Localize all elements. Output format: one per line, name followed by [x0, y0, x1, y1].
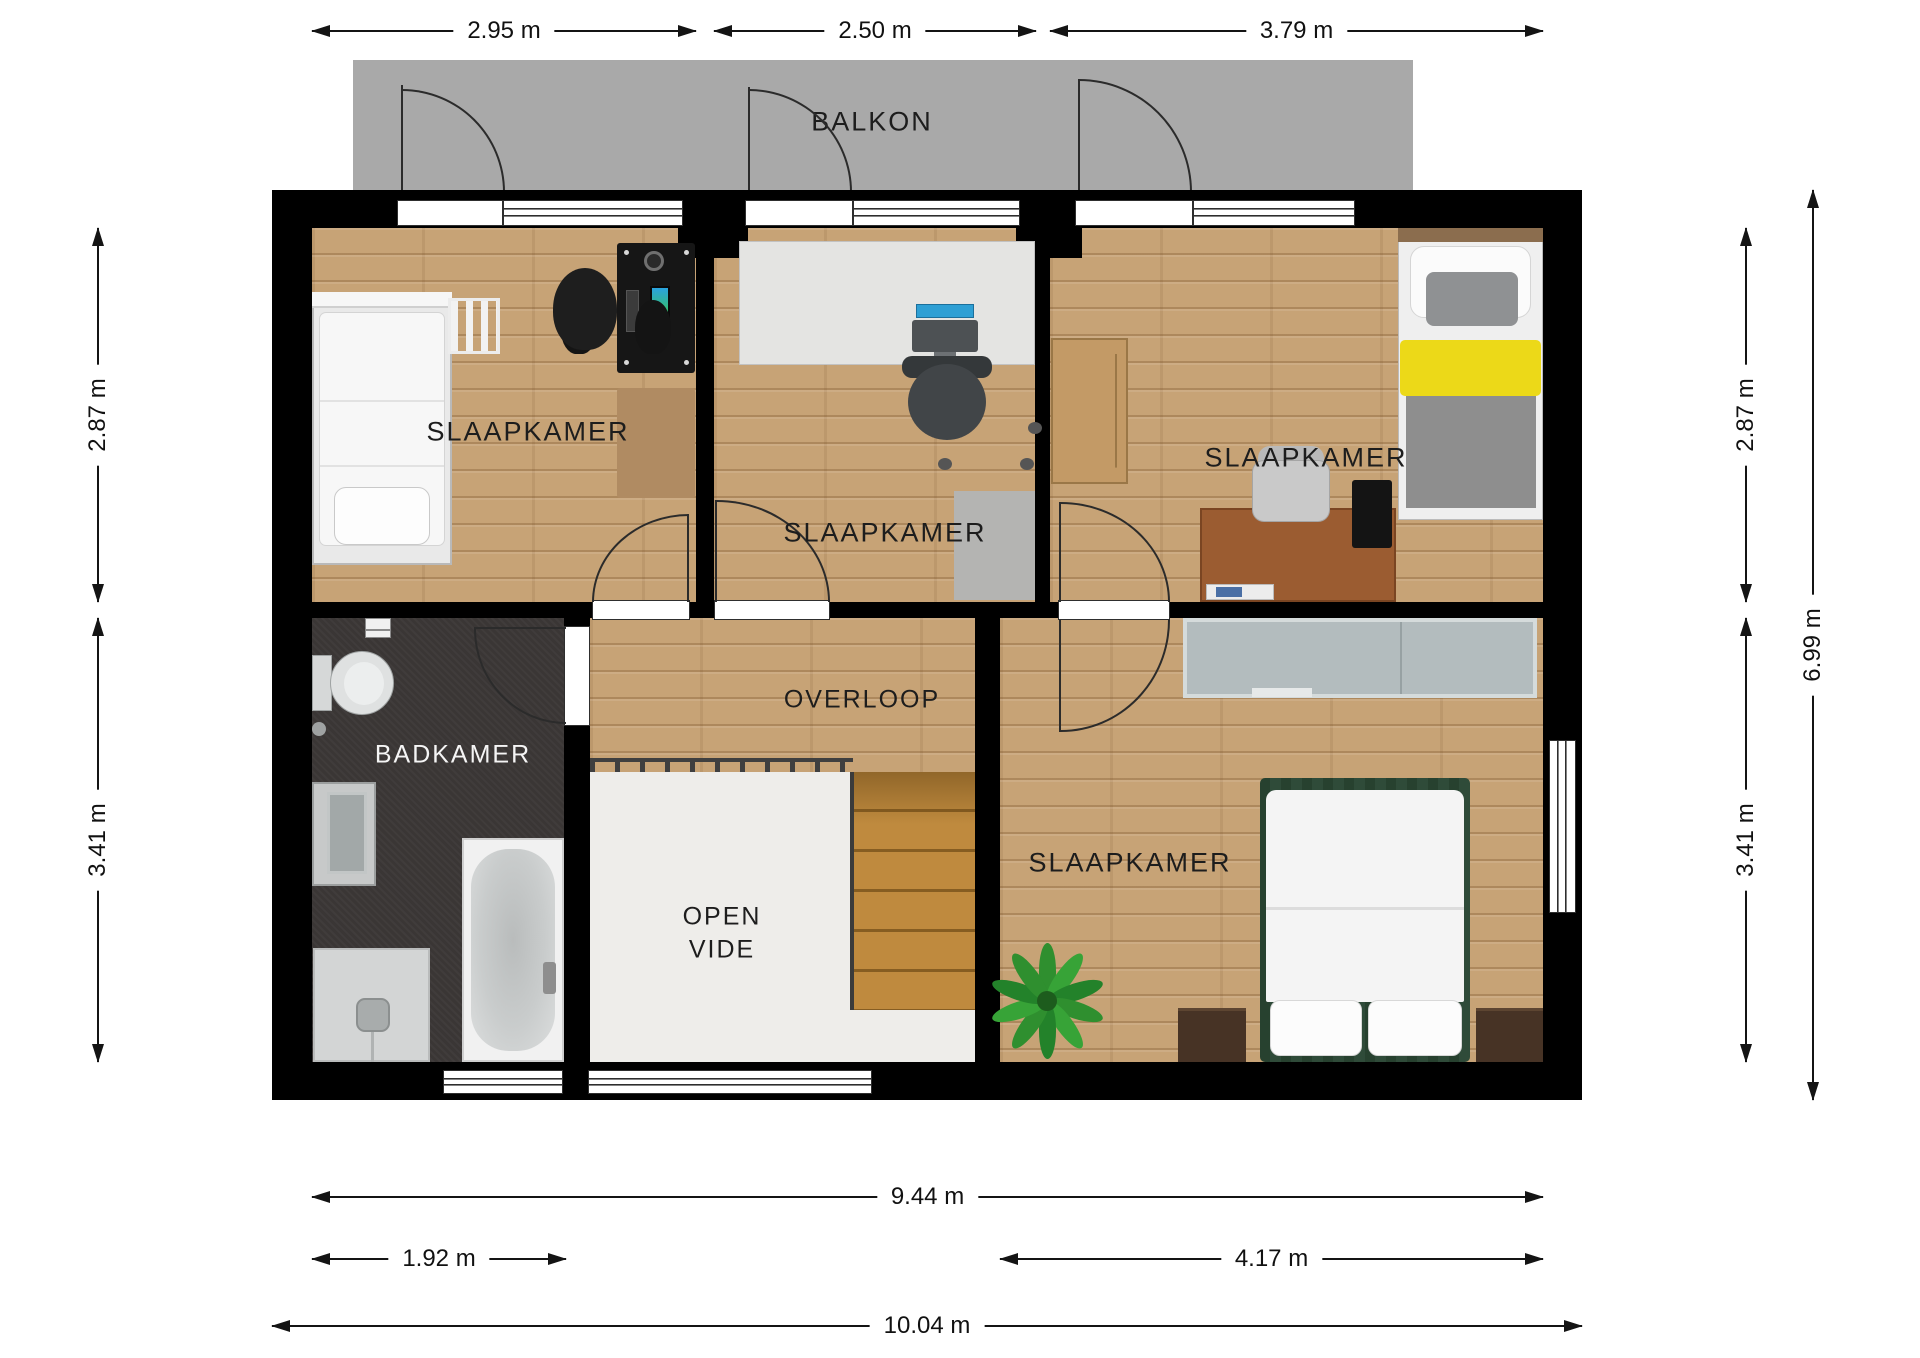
door-frame-bedroom1: [592, 600, 690, 620]
dimension-bottom-1: 9.44 m: [312, 1196, 1543, 1198]
dimension-top-2: 2.50 m: [714, 30, 1036, 32]
pillow-icon: [334, 487, 430, 545]
headset-icon: [644, 251, 664, 271]
stairs-icon: [853, 772, 975, 1010]
stairs-edge-line: [850, 772, 854, 1010]
exterior-wall-left: [272, 190, 312, 1100]
dimension-label: 10.04 m: [870, 1312, 985, 1340]
door-frame-bedroom2: [714, 600, 830, 620]
interior-wall-bedroom2-bedroom3: [1035, 228, 1050, 602]
shower-head-icon: [356, 998, 390, 1032]
door-frame-bathroom: [564, 626, 590, 726]
desk-corner-dot: [624, 360, 629, 365]
dimension-label: 1.92 m: [388, 1245, 489, 1273]
interior-wall-bedroom1-bedroom2: [696, 228, 714, 602]
dimension-label: 2.87 m: [84, 364, 112, 465]
dimension-label: 2.95 m: [453, 17, 554, 45]
window-right-bedroom4: [1549, 740, 1576, 913]
dimension-label: 9.44 m: [877, 1183, 978, 1211]
dimension-label: 2.50 m: [824, 17, 925, 45]
balcony-door-frame-3: [1075, 200, 1193, 226]
toilet-seat-inner: [344, 662, 384, 705]
bathtub-faucet-icon: [543, 962, 556, 994]
desk-corner-dot: [624, 250, 629, 255]
room-label-slaapkamer-4: SLAAPKAMER: [1028, 848, 1231, 879]
open-vide-floor-under-stairs: [853, 1010, 975, 1062]
room-label-slaapkamer-2: SLAAPKAMER: [783, 518, 986, 549]
ladder-icon: [448, 298, 500, 354]
dimension-label: 2.87 m: [1732, 364, 1760, 465]
desk-corner-dot: [684, 250, 689, 255]
monitor-body-icon: [912, 320, 978, 352]
window-bottom-bathroom: [443, 1070, 563, 1094]
dimension-label: 3.79 m: [1246, 17, 1347, 45]
balcony-door-frame-2: [745, 200, 853, 226]
gray-blanket-icon: [1406, 396, 1536, 508]
dimension-left-2: 3.41 m: [97, 618, 99, 1062]
shower-pipe: [371, 1032, 374, 1062]
nightstand-icon: [1178, 1008, 1246, 1062]
dimension-label: 3.41 m: [84, 789, 112, 890]
keyboard-icon: [626, 290, 639, 332]
plant-icon: [989, 943, 1105, 1059]
nightstand-icon: [1476, 1008, 1543, 1062]
washbasin-sink: [327, 792, 367, 874]
gaming-chair-icon: [553, 268, 617, 350]
dimension-label: 6.99 m: [1799, 594, 1827, 695]
dimension-top-1: 2.95 m: [312, 30, 696, 32]
window-top-bedroom1: [503, 200, 683, 226]
bed-frame-top: [1398, 228, 1543, 242]
bed-headboard: [312, 292, 452, 308]
dimension-bottom-3: 10.04 m: [272, 1325, 1582, 1327]
pillow-icon: [1270, 1000, 1362, 1056]
desk-icon: [739, 241, 1035, 365]
toilet-paper-icon: [365, 618, 391, 638]
dimension-top-3: 3.79 m: [1050, 30, 1543, 32]
door-frame-bedroom3: [1058, 600, 1170, 620]
exterior-wall-right: [1543, 190, 1582, 1100]
room-label-slaapkamer-1: SLAAPKAMER: [426, 417, 629, 448]
dimension-right-outer: 6.99 m: [1812, 190, 1814, 1100]
room-label-open-vide: OPEN VIDE: [683, 901, 762, 966]
window-bottom-openvide: [588, 1070, 872, 1094]
dimension-left-1: 2.87 m: [97, 228, 99, 602]
pillow-icon: [1368, 1000, 1462, 1056]
dimension-bottom-2a: 1.92 m: [312, 1258, 566, 1260]
wardrobe-icon: [1051, 338, 1128, 484]
monitor-screen-icon: [916, 304, 974, 318]
room-label-overloop: OVERLOOP: [784, 686, 940, 715]
sliding-wardrobe-icon: [1183, 618, 1537, 698]
dimension-right-inner-2: 3.41 m: [1745, 618, 1747, 1062]
books-icon: [1216, 587, 1242, 597]
dimension-right-inner-1: 2.87 m: [1745, 228, 1747, 602]
room-label-slaapkamer-3: SLAAPKAMER: [1204, 443, 1407, 474]
dimension-bottom-2b: 4.17 m: [1000, 1258, 1543, 1260]
window-top-bedroom3: [1193, 200, 1355, 226]
dimension-label: 3.41 m: [1732, 789, 1760, 890]
bed-mattress: [1266, 790, 1464, 1002]
wardrobe-handle: [1252, 688, 1312, 697]
window-top-bedroom2: [853, 200, 1020, 226]
interior-wall-horizontal: [312, 602, 1543, 618]
gray-pillow-icon: [1426, 272, 1518, 326]
balcony-door-frame-1: [397, 200, 503, 226]
desk-corner-dot: [684, 360, 689, 365]
room-label-badkamer: BADKAMER: [375, 741, 531, 770]
drain-dot-icon: [312, 722, 326, 736]
bathtub-inner: [471, 849, 555, 1051]
laptop-icon: [1352, 480, 1392, 548]
floor-plan: BALKON: [0, 0, 1920, 1358]
dimension-label: 4.17 m: [1221, 1245, 1322, 1273]
office-chair-seat-icon: [908, 364, 986, 440]
toilet-tank-icon: [312, 655, 332, 711]
yellow-blanket-icon: [1400, 340, 1541, 396]
railing-icon: [590, 758, 853, 776]
monitor-screen-icon: [650, 286, 670, 334]
